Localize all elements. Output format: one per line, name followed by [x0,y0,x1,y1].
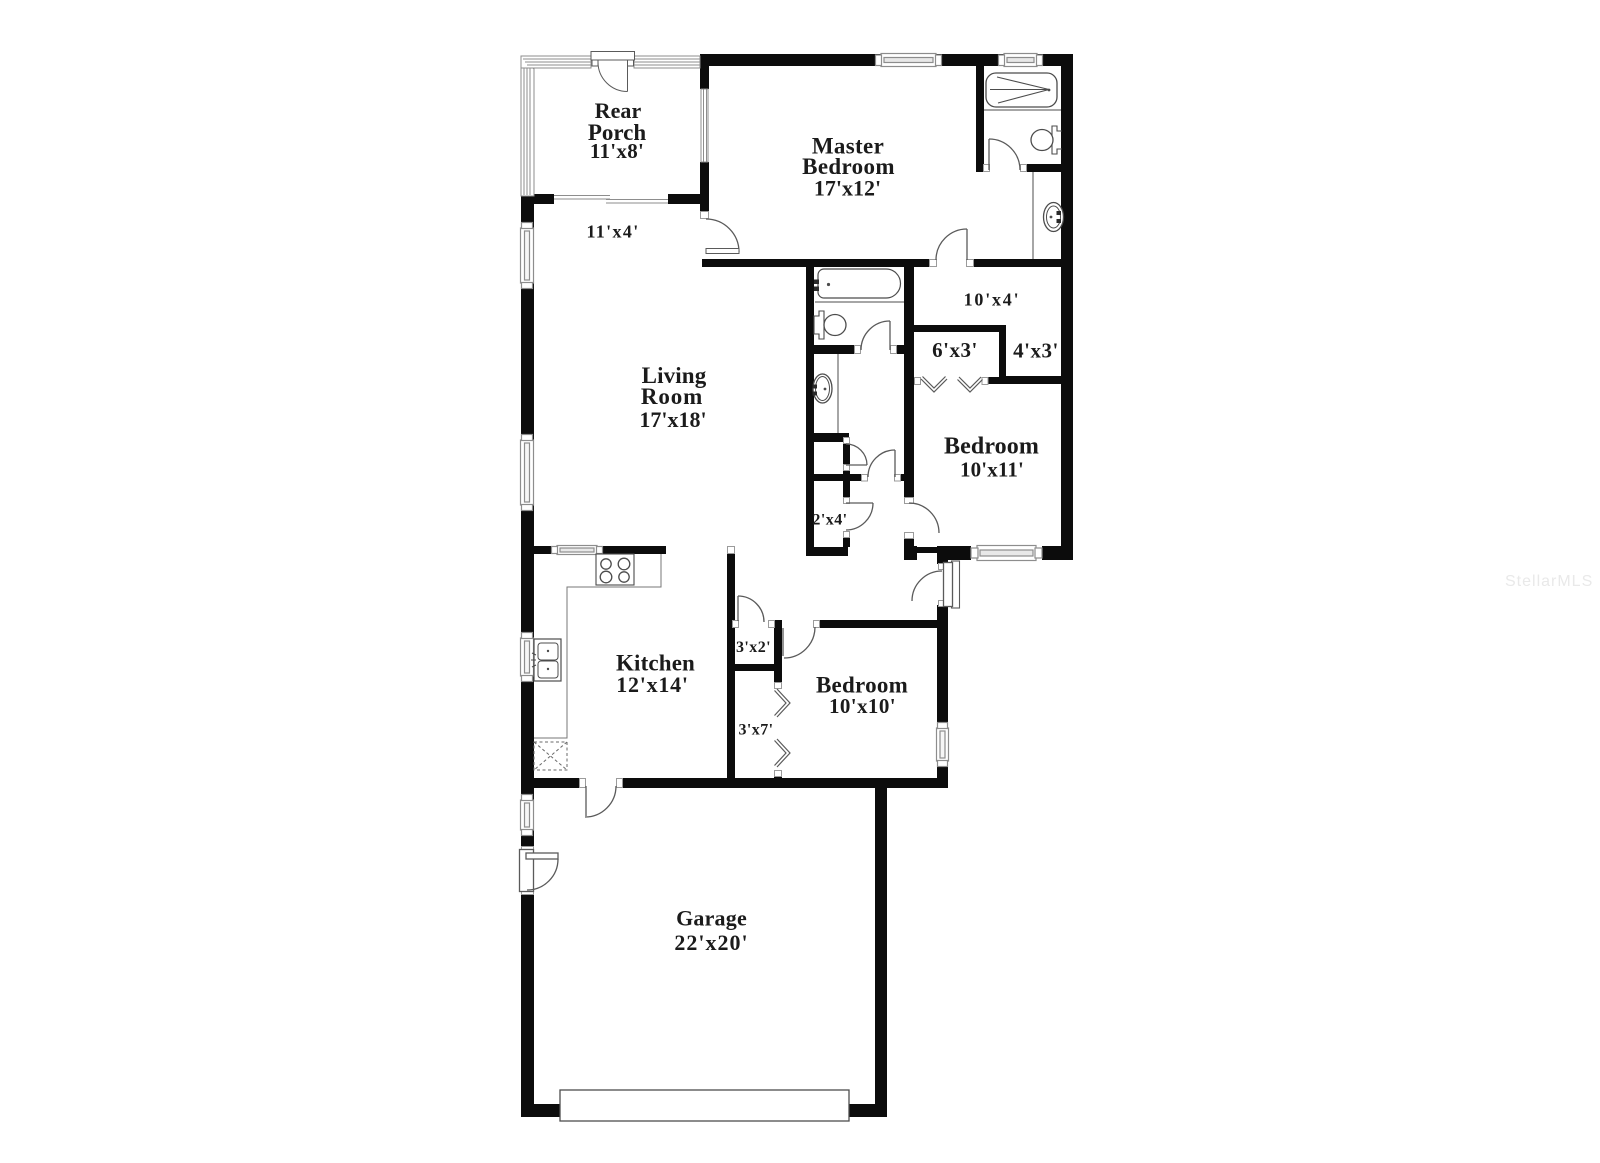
svg-text:10'x11': 10'x11' [960,458,1024,482]
svg-text:StellarMLS: StellarMLS [1505,573,1593,590]
svg-text:11'x4': 11'x4' [586,222,639,242]
svg-text:11'x8': 11'x8' [590,139,644,163]
svg-text:2'x4': 2'x4' [812,512,847,529]
svg-text:4'x3': 4'x3' [1013,339,1059,363]
svg-text:Room: Room [641,384,703,409]
svg-text:17'x12': 17'x12' [814,176,881,201]
svg-text:3'x7': 3'x7' [739,722,774,739]
svg-text:17'x18': 17'x18' [639,407,706,432]
svg-text:22'x20': 22'x20' [674,930,748,955]
svg-text:10'x4': 10'x4' [964,290,1021,310]
svg-text:Bedroom: Bedroom [944,434,1039,460]
svg-text:10'x10': 10'x10' [829,694,896,718]
svg-text:6'x3': 6'x3' [932,338,978,362]
svg-text:Garage: Garage [676,906,747,931]
svg-text:3'x2': 3'x2' [736,639,771,656]
svg-text:12'x14': 12'x14' [616,672,688,697]
